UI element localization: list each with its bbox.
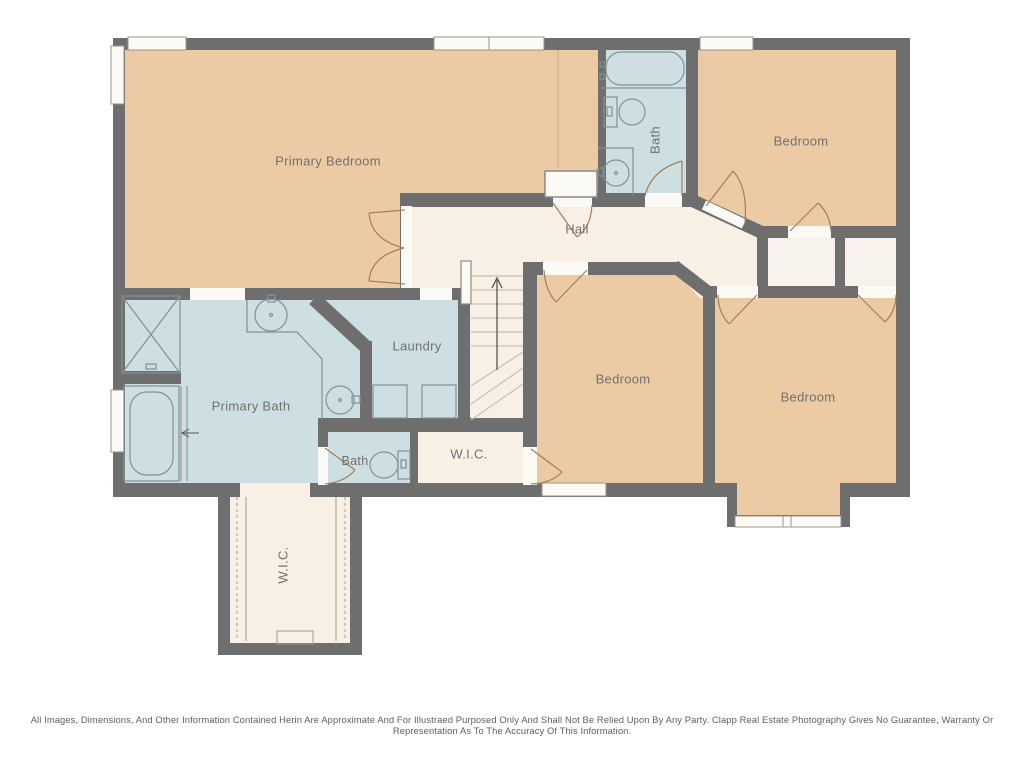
room-label-bedroom-upper-right: Bedroom [774, 134, 829, 149]
wic-center-door-opening [523, 447, 537, 485]
bath-lower-left-wall [318, 428, 328, 449]
bath-upper-door-opening [645, 193, 682, 207]
window-top-left [128, 37, 186, 50]
wic-lower-bottom-wall [218, 643, 362, 655]
floorplan-page: Primary Bedroom Bath Bedroom Hall Laundr… [0, 0, 1024, 768]
hall-closet-box [545, 171, 597, 197]
closet-right-door-opening [858, 286, 896, 298]
primary-bath-entry-opening [190, 288, 245, 300]
closet-left-door-opening [788, 226, 831, 238]
window-top-center-1 [434, 37, 489, 50]
room-label-wic-lower: W.I.C. [276, 546, 291, 583]
window-left-upper [111, 46, 124, 104]
outer-wall-right [896, 38, 910, 497]
room-label-bath-upper: Bath [648, 126, 663, 154]
wic-lower-right-wall [350, 483, 362, 655]
room-label-wic-center: W.I.C. [450, 447, 487, 462]
window-top-center-2 [489, 37, 544, 50]
laundry-bottom-wall [318, 418, 523, 432]
bedroom-lower-right-door-opening [717, 286, 758, 298]
window-bottom-middle-bedroom [542, 483, 606, 496]
room-label-bedroom-lower-right: Bedroom [781, 390, 836, 405]
laundry-opening [420, 288, 452, 300]
closet-left-floor [768, 238, 835, 288]
wic-lower-left-wall [218, 483, 230, 655]
window-left-lower [111, 390, 124, 452]
window-top-right [700, 37, 753, 50]
wic-center-left-wall [410, 428, 418, 483]
room-label-primary-bath: Primary Bath [212, 399, 291, 414]
window-bay [735, 516, 841, 527]
bay-window-opening [737, 483, 840, 497]
primary-bedroom-door-opening [401, 206, 412, 288]
room-label-laundry: Laundry [392, 339, 441, 354]
stair-railing [461, 261, 471, 304]
wic-lower-opening [240, 483, 310, 497]
disclaimer-text: All Images, Dimensions, And Other Inform… [0, 714, 1024, 736]
bath-lower-door-opening [318, 447, 328, 485]
bath-upper-right-wall [686, 48, 698, 203]
room-label-bath-lower: Bath [342, 454, 369, 468]
laundry-floor [366, 292, 458, 428]
room-label-hall: Hall [565, 222, 589, 237]
closet-divider-wall [835, 238, 845, 290]
bedroom-divider-wall [703, 290, 715, 497]
laundry-left-wall [360, 341, 372, 432]
bedroom-middle-door-opening [543, 262, 588, 275]
floorplan-drawing [0, 0, 1024, 768]
closet-right-floor [845, 238, 896, 288]
room-label-bedroom-middle: Bedroom [596, 372, 651, 387]
primary-bedroom-bottom-wall [113, 288, 412, 300]
room-label-primary-bedroom: Primary Bedroom [275, 154, 381, 169]
stair-left-wall [458, 300, 470, 430]
